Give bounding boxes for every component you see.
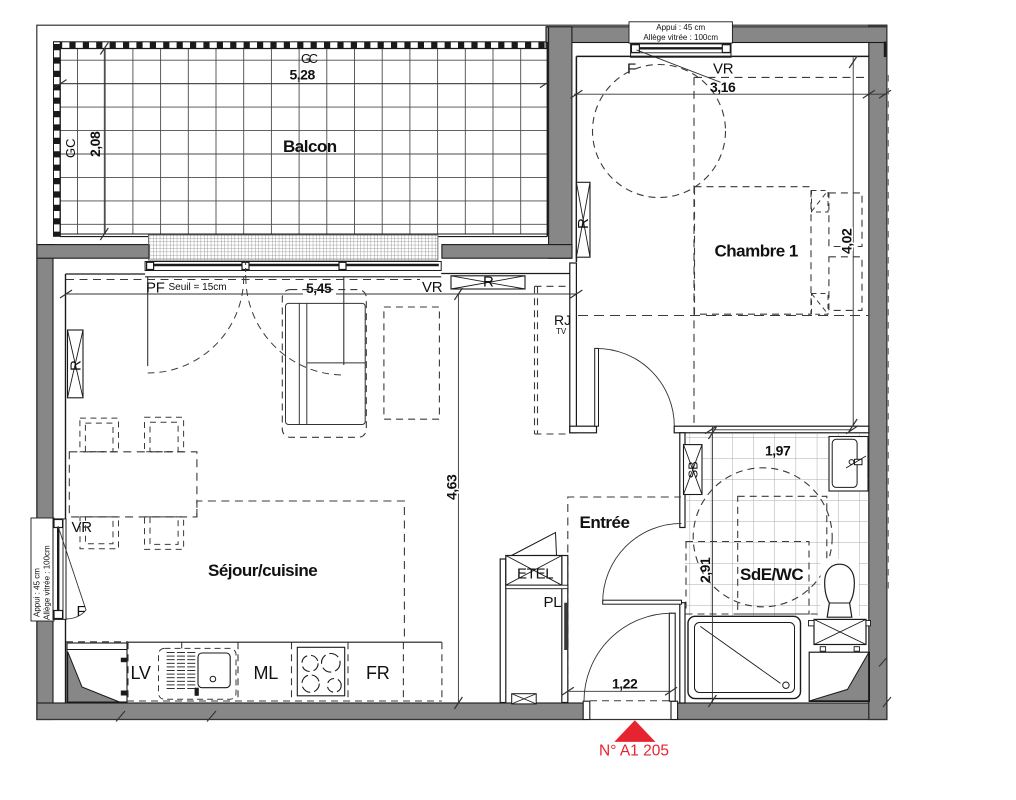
svg-text:Chambre 1: Chambre 1 [715,242,798,261]
svg-text:ML: ML [254,663,279,683]
svg-text:GC: GC [63,139,78,159]
svg-text:R: R [68,360,85,371]
svg-text:5,28: 5,28 [290,67,316,83]
svg-text:GC: GC [301,51,318,66]
svg-text:VR: VR [72,519,93,536]
svg-text:Entrée: Entrée [580,513,630,532]
svg-text:Séjour/cuisine: Séjour/cuisine [208,561,317,580]
svg-text:ETEL: ETEL [517,566,553,583]
svg-text:4,63: 4,63 [444,474,460,500]
svg-text:Seuil = 15cm: Seuil = 15cm [169,282,227,293]
svg-text:1,97: 1,97 [765,443,791,459]
svg-text:Appui : 45 cm: Appui : 45 cm [33,568,42,617]
svg-text:N° A1 205: N° A1 205 [599,743,669,760]
svg-text:F: F [77,603,86,620]
svg-text:Allège vitrée : 100cm: Allège vitrée : 100cm [643,33,718,42]
svg-text:TV: TV [556,327,567,336]
svg-text:R: R [575,218,592,229]
svg-text:PL: PL [544,594,562,611]
svg-text:SdE/WC: SdE/WC [740,565,803,584]
svg-text:Appui : 45 cm: Appui : 45 cm [656,23,705,32]
svg-text:4,02: 4,02 [839,228,855,254]
svg-text:VR: VR [422,279,443,296]
svg-text:SB: SB [686,461,701,478]
svg-text:LV: LV [131,663,151,683]
svg-text:2,08: 2,08 [87,131,103,157]
svg-text:RJ: RJ [554,312,571,328]
svg-text:VR: VR [713,61,734,78]
svg-text:Allège vitrée : 100cm: Allège vitrée : 100cm [43,545,52,620]
svg-text:2,91: 2,91 [697,557,713,583]
svg-text:Balcon: Balcon [283,137,337,156]
svg-text:1,22: 1,22 [612,676,638,692]
svg-text:5,45: 5,45 [306,280,332,296]
svg-text:3,16: 3,16 [710,79,736,95]
svg-text:R: R [483,274,494,291]
svg-text:FR: FR [366,663,390,683]
